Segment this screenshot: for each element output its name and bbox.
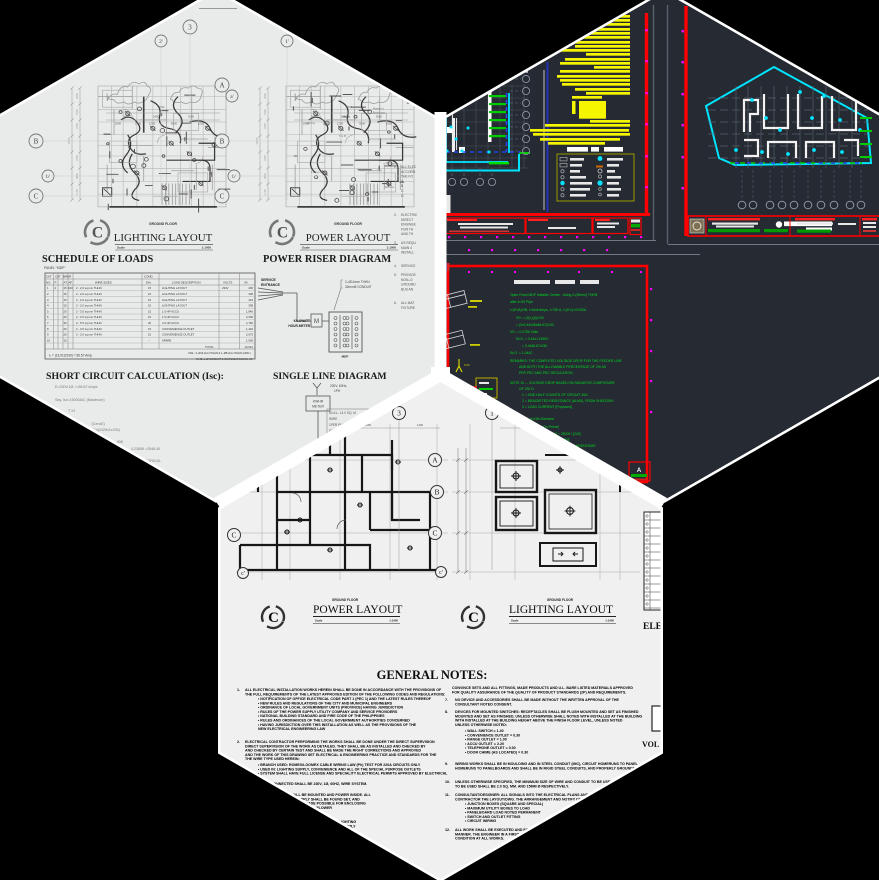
- svg-text:1.0 HP ACCU: 1.0 HP ACCU: [162, 309, 179, 313]
- svg-text:NEW ELECTRICAL ENGINEERING LAW: NEW ELECTRICAL ENGINEERING LAW: [258, 727, 326, 731]
- svg-text:CKT: CKT: [46, 275, 52, 279]
- svg-text:1:1000: 1:1000: [389, 619, 398, 623]
- svg-text:15: 15: [64, 338, 68, 342]
- svg-text:THE FULL REQUIREMENTS OF THE L: THE FULL REQUIREMENTS OF THE LATEST APPR…: [245, 692, 445, 696]
- svg-text:15: 15: [64, 292, 68, 296]
- svg-text:15: 15: [64, 298, 68, 302]
- svg-text:32mmØ CONDUIT: 32mmØ CONDUIT: [345, 285, 372, 289]
- svg-text:13,012: 13,012: [244, 345, 253, 349]
- svg-text:2450: 2450: [153, 115, 160, 119]
- svg-text:1': 1': [285, 39, 289, 45]
- svg-text:ENGINEE: ENGINEE: [401, 223, 417, 227]
- svg-text:Open Fixed MDP Installer Cente: Open Fixed MDP Installer Center : Using …: [510, 293, 598, 297]
- svg-text:'(CenxE): '(CenxE): [91, 422, 105, 426]
- svg-text:ELE: ELE: [643, 622, 662, 632]
- svg-text:after in 50 Pipe: after in 50 Pipe: [510, 300, 533, 304]
- svg-text:UNLESS OTHERWISE NOTED:: UNLESS OTHERWISE NOTED:: [455, 723, 507, 727]
- svg-text:A.: A.: [401, 179, 404, 183]
- svg-text:T & B: T & B: [339, 134, 346, 138]
- svg-text:2.: 2.: [394, 213, 397, 217]
- svg-text:2 - 5.5 sq.mm THHN: 2 - 5.5 sq.mm THHN: [76, 321, 102, 325]
- svg-text:B: B: [34, 138, 39, 146]
- svg-text:GROUND FLOOR: GROUND FLOOR: [149, 222, 177, 226]
- svg-text:4.: 4.: [394, 264, 397, 268]
- svg-text:30: 30: [64, 321, 68, 325]
- svg-text:2.: 2.: [237, 740, 240, 744]
- svg-text:C: C: [432, 529, 437, 538]
- svg-text:423: 423: [248, 298, 253, 302]
- svg-text:1,840: 1,840: [246, 309, 253, 313]
- svg-text:BRKR: BRKR: [63, 275, 71, 279]
- svg-text:15: 15: [148, 298, 152, 302]
- svg-text:SERVICE: SERVICE: [261, 278, 277, 282]
- svg-text:Scale: Scale: [302, 246, 310, 250]
- svg-text:1400: 1400: [417, 423, 424, 427]
- svg-text:3450: 3450: [123, 115, 130, 119]
- svg-text:4850: 4850: [75, 173, 79, 179]
- svg-text:= 0.4x56.67x230: = 0.4x56.67x230: [522, 344, 547, 348]
- svg-text:Scale: Scale: [315, 619, 323, 623]
- svg-text:THE WIRE TYPE USED HEREIN:: THE WIRE TYPE USED HEREIN:: [245, 757, 300, 761]
- svg-text:SCHEDULE OF LOADS: SCHEDULE OF LOADS: [42, 254, 153, 265]
- svg-text:E=230V,1Ø, I=55.67 Amps: E=230V,1Ø, I=55.67 Amps: [55, 385, 98, 389]
- svg-text:FOR QUALITY ASSURANCE OF THE Q: FOR QUALITY ASSURANCE OF THE QUALITY OF …: [452, 690, 626, 694]
- svg-text:7.: 7.: [445, 698, 448, 702]
- svg-text:B.: B.: [401, 184, 404, 188]
- svg-text:AND TH: AND TH: [401, 232, 414, 236]
- svg-text:B: B: [434, 488, 439, 497]
- svg-text:SPARE: SPARE: [162, 338, 171, 342]
- svg-text:NO.: NO.: [46, 281, 51, 285]
- svg-text:PROVIDE: PROVIDE: [401, 273, 417, 277]
- svg-text:REMARKS: THE COMPUTED VOLTAGE: REMARKS: THE COMPUTED VOLTAGE DROP FOR T…: [510, 359, 623, 363]
- svg-text:2 - 3.5 sq.mm THHN: 2 - 3.5 sq.mm THHN: [76, 327, 102, 331]
- svg-text:• SYSTEM SHALL HAVE FULL LICE: • SYSTEM SHALL HAVE FULL LICENSE AND SPE…: [258, 772, 448, 776]
- svg-text:c': c': [241, 571, 245, 577]
- svg-text:1.: 1.: [394, 165, 397, 169]
- svg-text:15: 15: [148, 333, 152, 337]
- svg-text:C: C: [268, 610, 279, 626]
- svg-text:3150: 3150: [75, 123, 79, 129]
- svg-text:2 - 3.5 sq.mm THHN: 2 - 3.5 sq.mm THHN: [76, 309, 102, 313]
- svg-text:3150: 3150: [263, 123, 267, 129]
- svg-text:5190: 5190: [75, 109, 79, 115]
- svg-text:ALL MAT: ALL MAT: [401, 301, 414, 305]
- svg-text:9.: 9.: [445, 762, 448, 766]
- svg-text:1400: 1400: [323, 122, 330, 126]
- svg-text:METER: METER: [312, 405, 324, 409]
- svg-text:60 A1– 14.0 SQ. M: 60 A1– 14.0 SQ. M: [329, 411, 356, 415]
- svg-text:2,300: 2,300: [246, 315, 253, 319]
- svg-text:15: 15: [148, 286, 152, 290]
- svg-text:Iₔ = (13,012/230) = 56.57: Iₔ = (13,012/230) = 56.57 Amp.: [49, 354, 93, 358]
- svg-text:3.: 3.: [394, 241, 397, 245]
- svg-text:GROUND FLOOR: GROUND FLOOR: [332, 598, 359, 602]
- svg-text:ACCORD: ACCORD: [401, 170, 416, 174]
- svg-text:DIA.: DIA.: [146, 281, 152, 285]
- svg-text:2900: 2900: [115, 122, 122, 126]
- svg-text:CONVENIENCE OUTLET: CONVENIENCE OUTLET: [162, 333, 195, 337]
- svg-text:C: C: [92, 224, 103, 241]
- svg-text:T X1: T X1: [68, 409, 76, 413]
- svg-text:15: 15: [148, 304, 152, 308]
- svg-text:POWER LAYOUT: POWER LAYOUT: [313, 604, 402, 616]
- svg-text:VA: VA: [244, 281, 248, 285]
- svg-text:100: 100: [68, 286, 73, 290]
- svg-text:1200: 1200: [337, 122, 344, 126]
- svg-text:6.: 6.: [394, 301, 397, 305]
- svg-text:OF 230 Ω: OF 230 Ω: [519, 387, 534, 391]
- svg-text:b': b': [232, 174, 236, 180]
- svg-text:IN.O. = 0.44x1.2x50V: IN.O. = 0.44x1.2x50V: [516, 337, 549, 341]
- svg-text:• CIRCUIT WIRING: • CIRCUIT WIRING: [465, 819, 496, 823]
- svg-text:2 = BRACKETED RESISTANCE (ALMS: 2 = BRACKETED RESISTANCE (ALMS), FROM SH…: [522, 399, 614, 403]
- svg-text:2 - 2.0 sq.mm THHN: 2 - 2.0 sq.mm THHN: [76, 298, 102, 302]
- svg-text:20: 20: [64, 327, 68, 331]
- svg-text:MAIN 4: MAIN 4: [401, 246, 412, 250]
- svg-text:POWER RISER DIAGRAM: POWER RISER DIAGRAM: [263, 254, 391, 265]
- svg-text:NOTE 10 :– VOLTAGE DROP BASED: NOTE 10 :– VOLTAGE DROP BASED ON RADIATO…: [510, 381, 616, 385]
- svg-text:B: B: [220, 138, 225, 146]
- svg-text:LIGHTING LAYOUT: LIGHTING LAYOUT: [509, 604, 613, 616]
- svg-text:• DOOR CHIME (AS LOCATED) = 0: • DOOR CHIME (AS LOCATED) = 0.30: [465, 751, 528, 755]
- svg-text:20: 20: [64, 315, 68, 319]
- svg-text:AT: AT: [64, 281, 68, 285]
- svg-text:1.: 1.: [237, 688, 240, 692]
- svg-text:C: C: [231, 531, 236, 540]
- svg-text:THE FO: THE FO: [401, 175, 414, 179]
- svg-text:2–Ø14mm THHN: 2–Ø14mm THHN: [345, 280, 370, 284]
- svg-text:ALL ELEC: ALL ELEC: [401, 165, 417, 169]
- svg-text:3: 3: [397, 409, 401, 418]
- svg-text:3650: 3650: [188, 115, 195, 119]
- svg-text:VD. = (2(L)(I))/100: VD. = (2(L)(I))/100: [516, 316, 544, 320]
- svg-text:BUS AN: BUS AN: [401, 287, 414, 291]
- svg-text:CKT: CKT: [55, 275, 61, 279]
- svg-text:GENERAL NOTES:: GENERAL NOTES:: [377, 668, 488, 682]
- svg-text:3 = LOAD CURRENT [Proposed]: 3 = LOAD CURRENT [Proposed]: [522, 405, 572, 409]
- svg-text:3450: 3450: [311, 115, 318, 119]
- svg-text:20: 20: [64, 309, 68, 313]
- svg-text:2900: 2900: [303, 122, 310, 126]
- svg-text:1PH: 1PH: [334, 389, 341, 393]
- svg-text:GROUND FLOOR: GROUND FLOOR: [334, 222, 362, 226]
- svg-text:290: 290: [248, 286, 253, 290]
- svg-text:2': 2': [159, 39, 163, 45]
- svg-text:LIGHTING LAYOUT: LIGHTING LAYOUT: [162, 298, 187, 302]
- svg-text:1,440: 1,440: [246, 327, 253, 331]
- svg-text:2000: 2000: [75, 93, 79, 99]
- svg-text:11.: 11.: [445, 793, 450, 797]
- svg-text:1:1000: 1:1000: [387, 246, 397, 250]
- svg-text:VOLTS: VOLTS: [223, 281, 232, 285]
- svg-text:AS REQU: AS REQU: [401, 241, 416, 245]
- svg-text:LIGHTING LAYOUT: LIGHTING LAYOUT: [162, 304, 187, 308]
- svg-text:2 - 3.5 sq.mm THHN: 2 - 3.5 sq.mm THHN: [76, 315, 102, 319]
- svg-text:10000: 10000: [255, 137, 259, 145]
- svg-text:3650: 3650: [376, 115, 383, 119]
- svg-text:C: C: [277, 224, 288, 241]
- svg-text:VOL: VOL: [642, 740, 659, 749]
- svg-text:TOTAL: TOTAL: [205, 345, 214, 349]
- svg-text:Entrance: Entrance: [387, 162, 399, 166]
- svg-text:Scale: Scale: [117, 246, 125, 250]
- svg-text:SERVICE: SERVICE: [401, 264, 416, 268]
- svg-text:I=(KVA)/VB, I=Mult Amps, I=750: I=(KVA)/VB, I=Mult Amps, I=750 A, I=(KV)…: [510, 308, 587, 312]
- svg-text:IN.O. = 1.044C: IN.O. = 1.044C: [510, 351, 533, 355]
- svg-text:TO BE USED SHALL BE 2.0 SQ. MM: TO BE USED SHALL BE 2.0 SQ. MM. AND 15MM…: [455, 784, 569, 788]
- svg-text:3000: 3000: [171, 122, 178, 126]
- svg-text:12.: 12.: [445, 828, 450, 832]
- svg-text:WIRE: WIRE: [329, 417, 337, 421]
- svg-text:IN 32mmØ CONDUIT & 60AT/10: IN 32mmØ CONDUIT & 60AT/100AF,15KAIC, 2P: [196, 357, 253, 361]
- svg-text:1750: 1750: [75, 189, 79, 195]
- svg-text:2000: 2000: [263, 93, 267, 99]
- svg-text:3: 3: [188, 24, 192, 32]
- svg-text:CONSULTANT NOTED CONSENT.: CONSULTANT NOTED CONSENT.: [455, 702, 512, 706]
- svg-text:GROUND FLOOR: GROUND FLOOR: [547, 598, 574, 602]
- svg-text:1050: 1050: [198, 122, 205, 126]
- svg-text:Say, Isc=15000AIC (Maximum): Say, Isc=15000AIC (Maximum): [55, 398, 105, 402]
- svg-text:1750: 1750: [263, 189, 267, 195]
- svg-text:VD. = 0.0756 Volts: VD. = 0.0756 Volts: [510, 330, 538, 334]
- svg-text:LIGHTING LAYOUT: LIGHTING LAYOUT: [162, 286, 187, 290]
- svg-text:A: A: [432, 456, 438, 465]
- svg-text:1,000: 1,000: [246, 338, 253, 342]
- svg-text:SHORT CIRCUIT CALCULATION (Isc: SHORT CIRCUIT CALCULATION (Isc):: [46, 371, 224, 382]
- svg-text:2 - 2.0 sq.mm THHN: 2 - 2.0 sq.mm THHN: [76, 292, 102, 296]
- svg-text:3150: 3150: [75, 155, 79, 161]
- svg-text:0.23656 =3548.40: 0.23656 =3548.40: [131, 447, 160, 451]
- svg-text:1.5 HP ACCU: 1.5 HP ACCU: [162, 315, 179, 319]
- svg-text:5190: 5190: [263, 109, 267, 115]
- svg-text:WIRE SIZES: WIRE SIZES: [95, 281, 112, 285]
- svg-text:USE : 2–Ø14.0mm²THHN &: USE : 2–Ø14.0mm²THHN & 1–Ø8.0mm²THHN (GR…: [188, 351, 251, 355]
- svg-text:LIGHTING LAYOUT: LIGHTING LAYOUT: [162, 292, 187, 296]
- svg-text:PANEL "MDP": PANEL "MDP": [44, 266, 66, 270]
- svg-text:10.: 10.: [445, 780, 450, 784]
- svg-text:15: 15: [64, 304, 68, 308]
- svg-text:1 = ONE-HALF COUNTS OF CIRCUIT: 1 = ONE-HALF COUNTS OF CIRCUIT 40Ω: [522, 393, 588, 397]
- svg-text:15: 15: [148, 309, 152, 313]
- svg-text:230V: 230V: [222, 286, 229, 290]
- svg-text:PER PEC AND PEC REGULATION.: PER PEC AND PEC REGULATION.: [519, 371, 573, 375]
- svg-text:2.0 HP ACCU: 2.0 HP ACCU: [162, 321, 179, 325]
- svg-text:P: P: [55, 281, 57, 285]
- svg-text:AND BOTH THE ALLOWABLE PERCENT: AND BOTH THE ALLOWABLE PERCENTAGE OF 2% …: [519, 365, 607, 369]
- svg-text:20: 20: [64, 333, 68, 337]
- svg-text:2,760: 2,760: [246, 321, 253, 325]
- svg-text:HOUR-METER: HOUR-METER: [288, 324, 310, 328]
- svg-text:C: C: [220, 193, 225, 201]
- svg-text:1:1000: 1:1000: [202, 246, 212, 250]
- svg-text:Living Area: Living Area: [311, 170, 326, 174]
- svg-text:HOMERUNS TO PANELBOARDS AND SH: HOMERUNS TO PANELBOARDS AND SHALL BE IN …: [455, 766, 639, 770]
- svg-text:10: 10: [47, 338, 51, 342]
- svg-text:230V, 60Hz,: 230V, 60Hz,: [330, 384, 347, 388]
- svg-text:A: A: [637, 468, 642, 474]
- svg-text:20: 20: [148, 321, 152, 325]
- svg-text:c': c': [439, 570, 443, 576]
- svg-text:1:1000: 1:1000: [605, 619, 614, 623]
- svg-text:b': b': [46, 174, 50, 180]
- svg-text:GROUND: GROUND: [401, 283, 416, 287]
- svg-text:INSTALL: INSTALL: [401, 251, 414, 255]
- svg-text:2,075: 2,075: [246, 333, 253, 337]
- svg-text:15: 15: [148, 315, 152, 319]
- svg-text:C: C: [34, 193, 39, 201]
- svg-text:= (2x0.44x36x56.67)/100: = (2x0.44x36x56.67)/100: [516, 323, 554, 327]
- svg-text:3000: 3000: [359, 122, 366, 126]
- svg-text:10000: 10000: [67, 137, 71, 145]
- svg-text:1050: 1050: [386, 122, 393, 126]
- svg-text:M: M: [314, 319, 319, 325]
- svg-text:5.: 5.: [394, 273, 397, 277]
- svg-text:MDP: MDP: [342, 355, 349, 359]
- svg-text:POWER LAYOUT: POWER LAYOUT: [306, 232, 391, 244]
- svg-text:C.: C.: [401, 189, 404, 193]
- svg-text:KWHR: KWHR: [313, 400, 324, 404]
- svg-text:15: 15: [148, 327, 152, 331]
- svg-text:4850: 4850: [263, 173, 267, 179]
- svg-text:A: A: [219, 82, 224, 90]
- svg-text:9500: 9500: [346, 105, 353, 109]
- svg-text:Terrace: Terrace: [384, 185, 394, 189]
- svg-text:2450: 2450: [341, 115, 348, 119]
- svg-text:LOAD DESCRIPTION: LOAD DESCRIPTION: [172, 281, 200, 285]
- svg-text:FOR TH: FOR TH: [401, 227, 414, 231]
- svg-text:D.: D.: [401, 194, 404, 198]
- svg-text:2 - 2.0 sq.mm THHN: 2 - 2.0 sq.mm THHN: [76, 333, 102, 337]
- svg-text:8.: 8.: [445, 710, 448, 714]
- svg-text:ELECTRIC: ELECTRIC: [401, 213, 418, 217]
- svg-text:3150: 3150: [263, 155, 267, 161]
- svg-text:2 - 2.0 sq.mm THHN: 2 - 2.0 sq.mm THHN: [76, 286, 102, 290]
- svg-text:C: C: [468, 610, 479, 626]
- svg-text:AF: AF: [69, 281, 73, 285]
- svg-text:15: 15: [148, 292, 152, 296]
- svg-text:KILOWATT: KILOWATT: [294, 319, 310, 323]
- svg-text:COND.: COND.: [144, 275, 154, 279]
- svg-text:DIRECT: DIRECT: [401, 218, 413, 222]
- svg-text:CONDITION AT ALL WORKS.: CONDITION AT ALL WORKS.: [455, 837, 504, 841]
- svg-text:ENTRANCE: ENTRANCE: [261, 283, 281, 287]
- svg-text:1400: 1400: [135, 122, 142, 126]
- svg-text:338: 338: [248, 292, 253, 296]
- svg-text:CONVENIENCE OUTLET: CONVENIENCE OUTLET: [162, 327, 195, 331]
- svg-text:KVA: KVA: [464, 363, 470, 367]
- svg-text:2 - 2.0 sq.mm THHN: 2 - 2.0 sq.mm THHN: [76, 304, 102, 308]
- svg-text:NON–O: NON–O: [401, 278, 413, 282]
- svg-text:15: 15: [64, 286, 68, 290]
- svg-text:FIXTURE: FIXTURE: [401, 306, 416, 310]
- svg-text:1200: 1200: [149, 122, 156, 126]
- svg-text:338: 338: [248, 304, 253, 308]
- svg-text:SINGLE LINE DIAGRAM: SINGLE LINE DIAGRAM: [273, 371, 387, 382]
- svg-text:Scale: Scale: [511, 619, 519, 623]
- svg-text:a': a': [230, 94, 233, 100]
- svg-text:LIGHTING LAYOUT: LIGHTING LAYOUT: [114, 232, 213, 244]
